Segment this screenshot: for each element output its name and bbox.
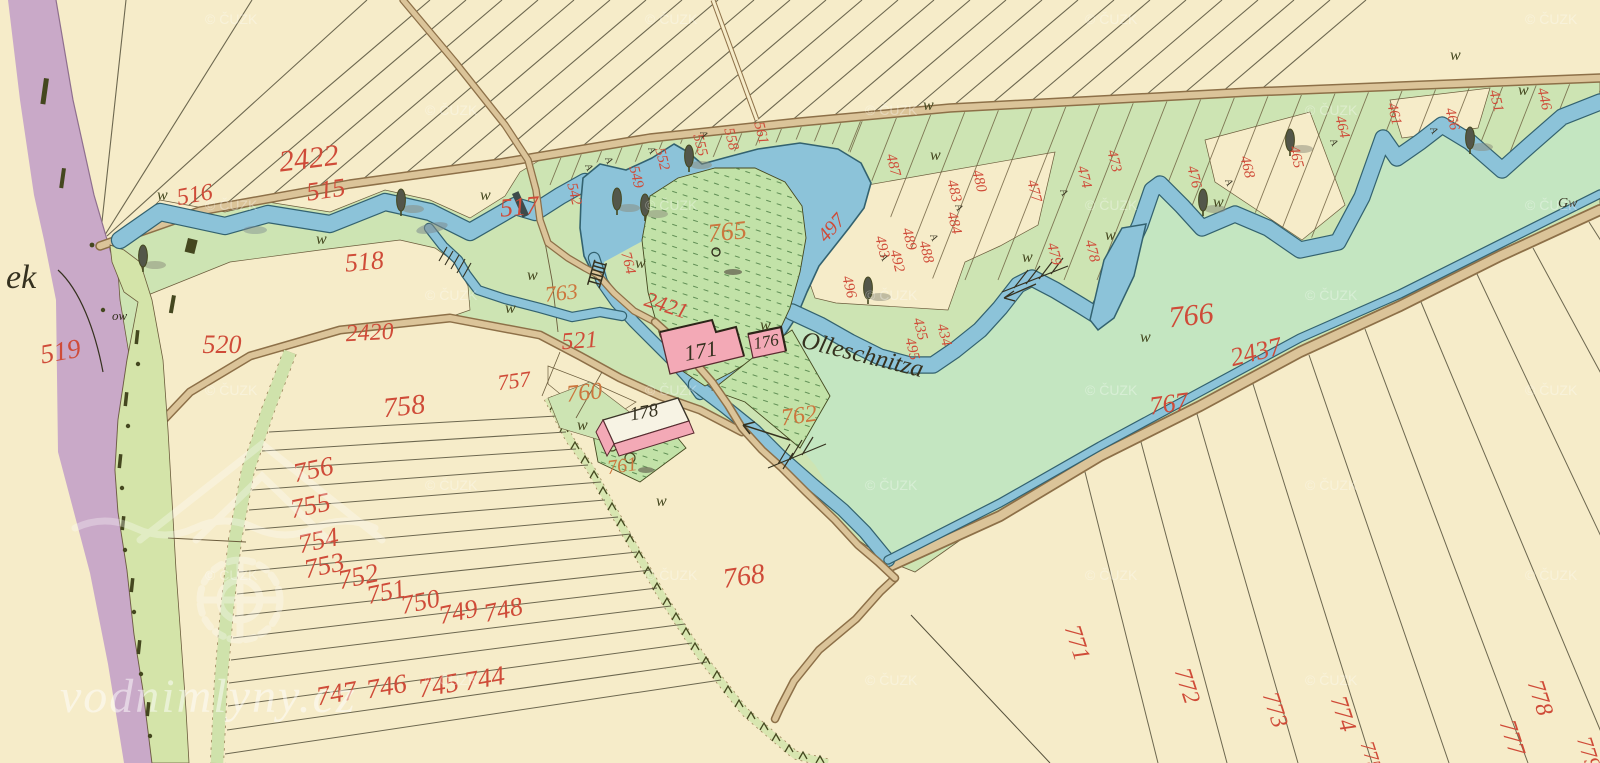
svg-text:© ČUZK: © ČUZK [1305, 477, 1358, 493]
svg-text:© ČUZK: © ČUZK [865, 672, 918, 688]
svg-text:w: w [1518, 82, 1529, 99]
svg-text:w: w [527, 267, 538, 284]
svg-text:© ČUZK: © ČUZK [425, 102, 478, 118]
svg-text:© ČUZK: © ČUZK [205, 11, 258, 27]
svg-text:© ČUZK: © ČUZK [425, 287, 478, 303]
svg-text:517: 517 [499, 190, 541, 222]
svg-text:515: 515 [304, 173, 347, 207]
svg-text:w: w [505, 300, 516, 317]
svg-text:© ČUZK: © ČUZK [645, 197, 698, 213]
svg-text:w: w [316, 231, 327, 248]
svg-text:w: w [760, 317, 771, 334]
svg-text:w: w [1022, 249, 1033, 266]
svg-text:760: 760 [565, 378, 604, 408]
svg-text:© ČUZK: © ČUZK [205, 197, 258, 213]
svg-text:762: 762 [779, 401, 818, 432]
svg-text:© ČUZK: © ČUZK [645, 11, 698, 27]
svg-text:ek: ek [6, 259, 37, 296]
svg-text:w: w [577, 417, 588, 434]
svg-text:© ČUZK: © ČUZK [1305, 287, 1358, 303]
svg-text:w: w [656, 493, 667, 510]
svg-text:© ČUZK: © ČUZK [425, 477, 478, 493]
svg-text:757: 757 [496, 366, 533, 395]
svg-text:758: 758 [382, 389, 427, 424]
svg-text:© ČUZK: © ČUZK [1525, 567, 1578, 583]
svg-text:© ČUZK: © ČUZK [1085, 197, 1138, 213]
svg-text:© ČUZK: © ČUZK [865, 102, 918, 118]
svg-text:766: 766 [1167, 297, 1215, 335]
svg-text:520: 520 [203, 330, 242, 359]
svg-text:© ČUZK: © ČUZK [645, 382, 698, 398]
svg-text:768: 768 [721, 558, 767, 595]
svg-text:w: w [930, 147, 941, 164]
svg-text:ow: ow [112, 308, 128, 323]
svg-text:765: 765 [706, 215, 748, 248]
svg-text:w: w [1105, 227, 1116, 244]
svg-text:518: 518 [344, 245, 385, 277]
svg-text:w: w [635, 255, 646, 272]
svg-text:761: 761 [606, 453, 639, 479]
svg-text:© ČUZK: © ČUZK [865, 477, 918, 493]
svg-text:© ČUZK: © ČUZK [865, 287, 918, 303]
svg-text:w: w [1450, 47, 1461, 64]
svg-text:© ČUZK: © ČUZK [1525, 197, 1578, 213]
svg-text:w: w [1140, 329, 1151, 346]
svg-text:vodnimlyny.cz: vodnimlyny.cz [60, 670, 357, 723]
svg-text:© ČUZK: © ČUZK [1305, 672, 1358, 688]
svg-text:w: w [480, 187, 491, 204]
svg-text:© ČUZK: © ČUZK [1525, 382, 1578, 398]
svg-text:w: w [1213, 194, 1224, 211]
svg-text:767: 767 [1147, 386, 1191, 420]
svg-text:© ČUZK: © ČUZK [1525, 11, 1578, 27]
svg-text:w: w [157, 187, 168, 204]
svg-text:© ČUZK: © ČUZK [1085, 11, 1138, 27]
svg-text:© ČUZK: © ČUZK [425, 672, 478, 688]
svg-text:521: 521 [561, 327, 599, 355]
svg-text:w: w [923, 97, 934, 114]
svg-text:763: 763 [543, 278, 578, 306]
svg-text:© ČUZK: © ČUZK [1085, 382, 1138, 398]
svg-text:2420: 2420 [345, 319, 394, 347]
svg-text:© ČUZK: © ČUZK [1085, 567, 1138, 583]
svg-text:© ČUZK: © ČUZK [645, 567, 698, 583]
svg-text:© ČUZK: © ČUZK [1305, 102, 1358, 118]
svg-text:© ČUZK: © ČUZK [205, 382, 258, 398]
